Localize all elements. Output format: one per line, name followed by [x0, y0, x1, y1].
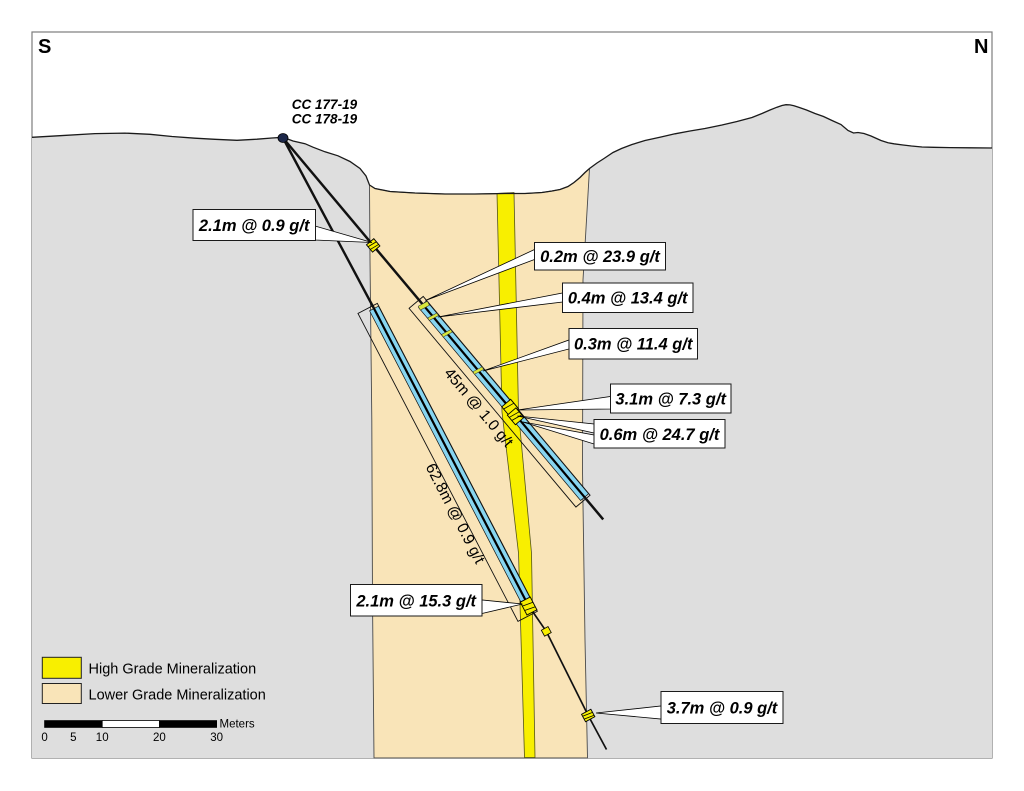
svg-text:3.1m @ 7.3 g/t: 3.1m @ 7.3 g/t: [615, 391, 727, 409]
svg-text:5: 5: [70, 732, 76, 744]
svg-text:N: N: [974, 36, 988, 58]
svg-text:20: 20: [153, 732, 166, 744]
svg-text:0.2m @ 23.9 g/t: 0.2m @ 23.9 g/t: [540, 248, 661, 266]
svg-text:CC 177-19: CC 177-19: [292, 97, 358, 112]
svg-text:0.3m @ 11.4 g/t: 0.3m @ 11.4 g/t: [574, 336, 694, 354]
svg-text:Lower Grade Mineralization: Lower Grade Mineralization: [89, 688, 266, 704]
svg-text:30: 30: [210, 732, 223, 744]
svg-text:High Grade Mineralization: High Grade Mineralization: [89, 662, 257, 678]
svg-text:0.6m @ 24.7 g/t: 0.6m @ 24.7 g/t: [600, 426, 721, 444]
svg-text:0: 0: [41, 732, 47, 744]
svg-text:10: 10: [96, 732, 109, 744]
svg-text:2.1m @ 0.9 g/t: 2.1m @ 0.9 g/t: [198, 217, 311, 235]
svg-text:0.4m @ 13.4 g/t: 0.4m @ 13.4 g/t: [568, 290, 689, 308]
svg-text:S: S: [38, 36, 51, 58]
svg-text:Meters: Meters: [220, 719, 255, 731]
svg-text:CC 178-19: CC 178-19: [292, 112, 358, 127]
svg-text:2.1m @ 15.3 g/t: 2.1m @ 15.3 g/t: [355, 593, 477, 611]
svg-text:3.7m @ 0.9 g/t: 3.7m @ 0.9 g/t: [667, 700, 779, 718]
